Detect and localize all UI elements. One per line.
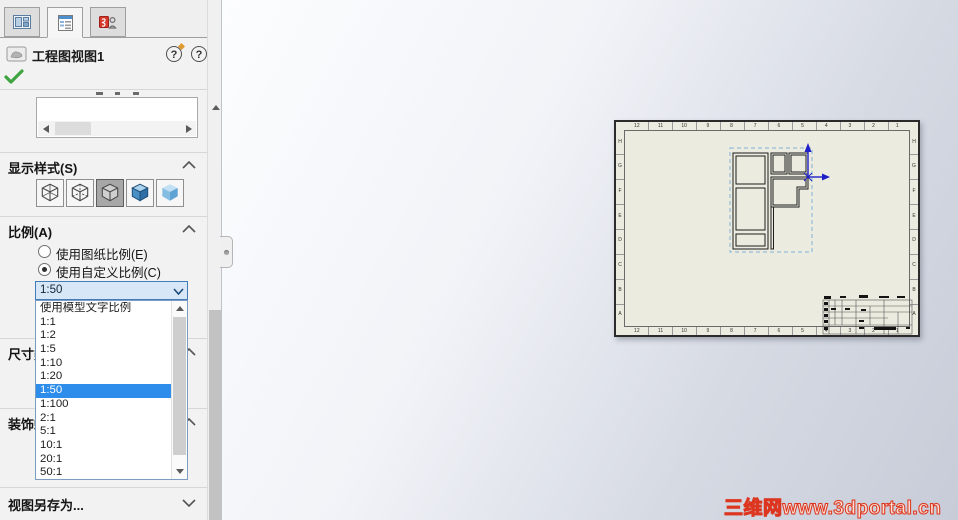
property-manager-panel: 工程图视图1 ? ? 显	[0, 0, 208, 520]
panel-title: 工程图视图1	[32, 46, 104, 65]
scroll-up-button[interactable]	[208, 100, 223, 115]
tab-configurationmanager[interactable]	[90, 7, 126, 37]
reference-configuration-listbox[interactable]	[36, 97, 198, 138]
save-view-as-section-header[interactable]: 视图另存为...	[8, 495, 84, 514]
radio-use-sheet-scale[interactable]	[38, 245, 51, 258]
scale-option[interactable]: 5:1	[36, 425, 171, 439]
style-button-shaded-with-edges[interactable]	[126, 179, 154, 207]
style-button-hidden-lines-removed[interactable]	[96, 179, 124, 207]
splitter-grip-dot	[224, 250, 229, 255]
drawing-view-graphics[interactable]	[616, 122, 922, 339]
divider	[0, 487, 207, 488]
scale-option[interactable]: 1:100	[36, 398, 171, 412]
scale-option[interactable]: 1:10	[36, 357, 171, 371]
scale-option[interactable]: 1:1	[36, 316, 171, 330]
confirm-check-icon[interactable]	[4, 68, 24, 86]
featuremanager-tree-icon	[12, 13, 32, 31]
scale-option[interactable]: 使用模型文字比例	[36, 302, 171, 316]
style-button-wireframe[interactable]	[36, 179, 64, 207]
divider	[0, 152, 207, 153]
scale-option[interactable]: 2:1	[36, 412, 171, 426]
display-style-section-header[interactable]: 显示样式(S)	[8, 158, 77, 177]
style-button-hidden-lines-visible[interactable]	[66, 179, 94, 207]
scale-combobox[interactable]: 1:50	[35, 281, 188, 300]
radio-label-sheet-scale[interactable]: 使用图纸比例(E)	[56, 244, 148, 263]
scroll-down-button[interactable]	[172, 464, 187, 479]
configurationmanager-icon	[98, 13, 118, 31]
scale-combobox-value: 1:50	[40, 284, 62, 296]
title-block	[823, 300, 912, 334]
manager-tab-bar	[0, 0, 207, 38]
panel-vertical-scrollbar[interactable]	[207, 0, 221, 520]
scale-dropdown-list[interactable]: 使用模型文字比例1:11:21:51:101:201:501:1002:15:1…	[35, 300, 188, 480]
scale-option[interactable]: 1:5	[36, 343, 171, 357]
divider	[0, 216, 207, 217]
scale-option[interactable]: 1:2	[36, 329, 171, 343]
solidworks-window: 121110987654321 121110987654321 HGFEDCBA…	[0, 0, 958, 520]
scale-option[interactable]: 1:50	[36, 384, 171, 398]
scale-options: 使用模型文字比例1:11:21:51:101:201:501:1002:15:1…	[36, 302, 171, 480]
horizontal-scrollbar[interactable]	[38, 121, 196, 136]
drawing-view-icon	[6, 44, 27, 64]
scroll-up-button[interactable]	[172, 301, 187, 316]
drawing-sheet[interactable]: 121110987654321 121110987654321 HGFEDCBA…	[614, 120, 920, 337]
help-star-badge	[178, 43, 185, 50]
scale-section-header[interactable]: 比例(A)	[8, 222, 52, 241]
scale-option[interactable]: 1:20	[36, 370, 171, 384]
collapse-chevron-icon[interactable]	[182, 225, 198, 235]
tab-featuremanager-tree[interactable]	[4, 7, 40, 37]
collapse-chevron-icon[interactable]	[182, 161, 198, 171]
radio-label-custom-scale[interactable]: 使用自定义比例(C)	[56, 262, 161, 281]
tab-propertymanager[interactable]	[47, 7, 83, 38]
style-button-shaded[interactable]	[156, 179, 184, 207]
dropdown-scrollbar[interactable]	[171, 301, 187, 479]
expand-chevron-icon[interactable]	[182, 499, 198, 509]
combobox-dropdown-chevron-icon[interactable]	[173, 288, 184, 295]
scale-option[interactable]: 20:1	[36, 453, 171, 467]
whats-new-help-icon[interactable]: ?	[166, 46, 182, 62]
scale-option[interactable]: 10:1	[36, 439, 171, 453]
help-icon[interactable]: ?	[191, 46, 207, 62]
scrollbar-thumb[interactable]	[209, 310, 221, 520]
panel-splitter-handle[interactable]	[220, 236, 233, 268]
scrollbar-thumb[interactable]	[173, 317, 186, 455]
radio-use-custom-scale[interactable]	[38, 263, 51, 276]
scroll-right-button[interactable]	[181, 121, 196, 136]
scroll-left-button[interactable]	[38, 121, 53, 136]
watermark: 三维网www.3dportal.cn	[724, 493, 941, 520]
propertymanager-icon	[56, 14, 75, 32]
divider	[0, 89, 207, 90]
scale-option[interactable]: 50:1	[36, 466, 171, 480]
sketch-origin-axes	[804, 143, 830, 181]
scrollbar-thumb[interactable]	[55, 122, 91, 135]
